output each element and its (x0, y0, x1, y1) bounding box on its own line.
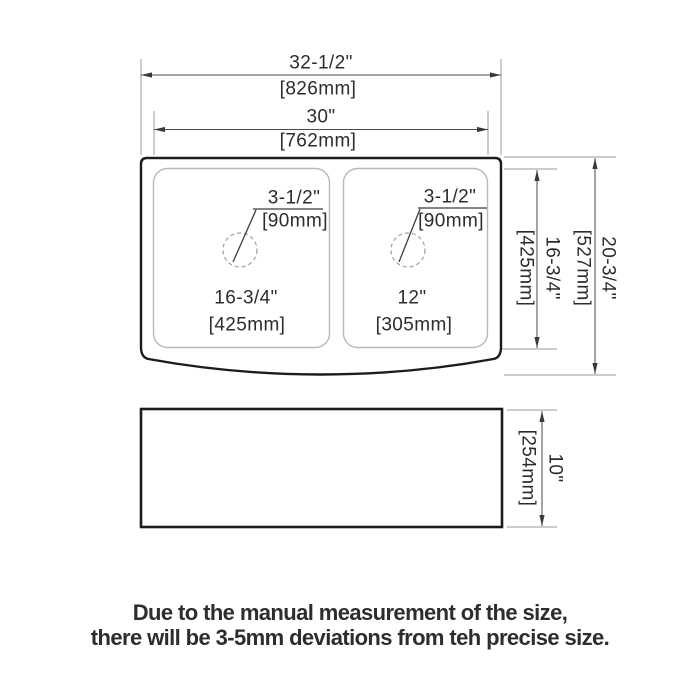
arrow-icon (534, 170, 539, 181)
dim-right-bowl-inches: 12" (397, 289, 426, 308)
dim-height-mm: [254mm] (519, 430, 538, 507)
dim-overall-width-inches: 32-1/2" (289, 54, 352, 73)
dim-height-inches: 10" (546, 453, 565, 482)
dim-left-bowl-mm: [425mm] (209, 316, 286, 335)
dim-inner-width-mm: [762mm] (280, 132, 357, 151)
dim-right-drain-inches: 3-1/2" (424, 188, 476, 207)
dim-right-drain-mm: [90mm] (418, 212, 484, 231)
arrow-icon (154, 127, 165, 132)
dim-overall-width-mm: [826mm] (280, 80, 357, 99)
arrow-icon (477, 127, 488, 132)
disclaimer-line-2: there will be 3-5mm deviations from teh … (0, 625, 700, 650)
arrow-icon (490, 72, 501, 77)
dim-overall-depth-mm: [527mm] (574, 230, 593, 307)
sink-side-view-outline (141, 409, 502, 527)
arrow-icon (592, 363, 597, 374)
arrow-icon (539, 411, 544, 422)
arrow-icon (534, 337, 539, 348)
disclaimer-line-1: Due to the manual measurement of the siz… (0, 600, 700, 625)
arrow-icon (141, 72, 152, 77)
dim-left-drain-inches: 3-1/2" (268, 189, 320, 208)
drawing-linework (0, 0, 700, 700)
dim-bowl-depth-mm: [425mm] (517, 230, 536, 307)
measurement-disclaimer: Due to the manual measurement of the siz… (0, 600, 700, 650)
dim-right-bowl-mm: [305mm] (376, 316, 453, 335)
arrow-icon (539, 515, 544, 526)
dim-left-bowl-inches: 16-3/4" (214, 289, 277, 308)
dim-overall-depth-inches: 20-3/4" (599, 236, 618, 299)
dim-bowl-depth-inches: 16-3/4" (543, 236, 562, 299)
dim-inner-width-inches: 30" (306, 108, 335, 127)
sink-dimension-drawing: 32-1/2" [826mm] 30" [762mm] 3-1/2" [90mm… (0, 0, 700, 700)
arrow-icon (592, 158, 597, 169)
dim-left-drain-mm: [90mm] (262, 212, 328, 231)
